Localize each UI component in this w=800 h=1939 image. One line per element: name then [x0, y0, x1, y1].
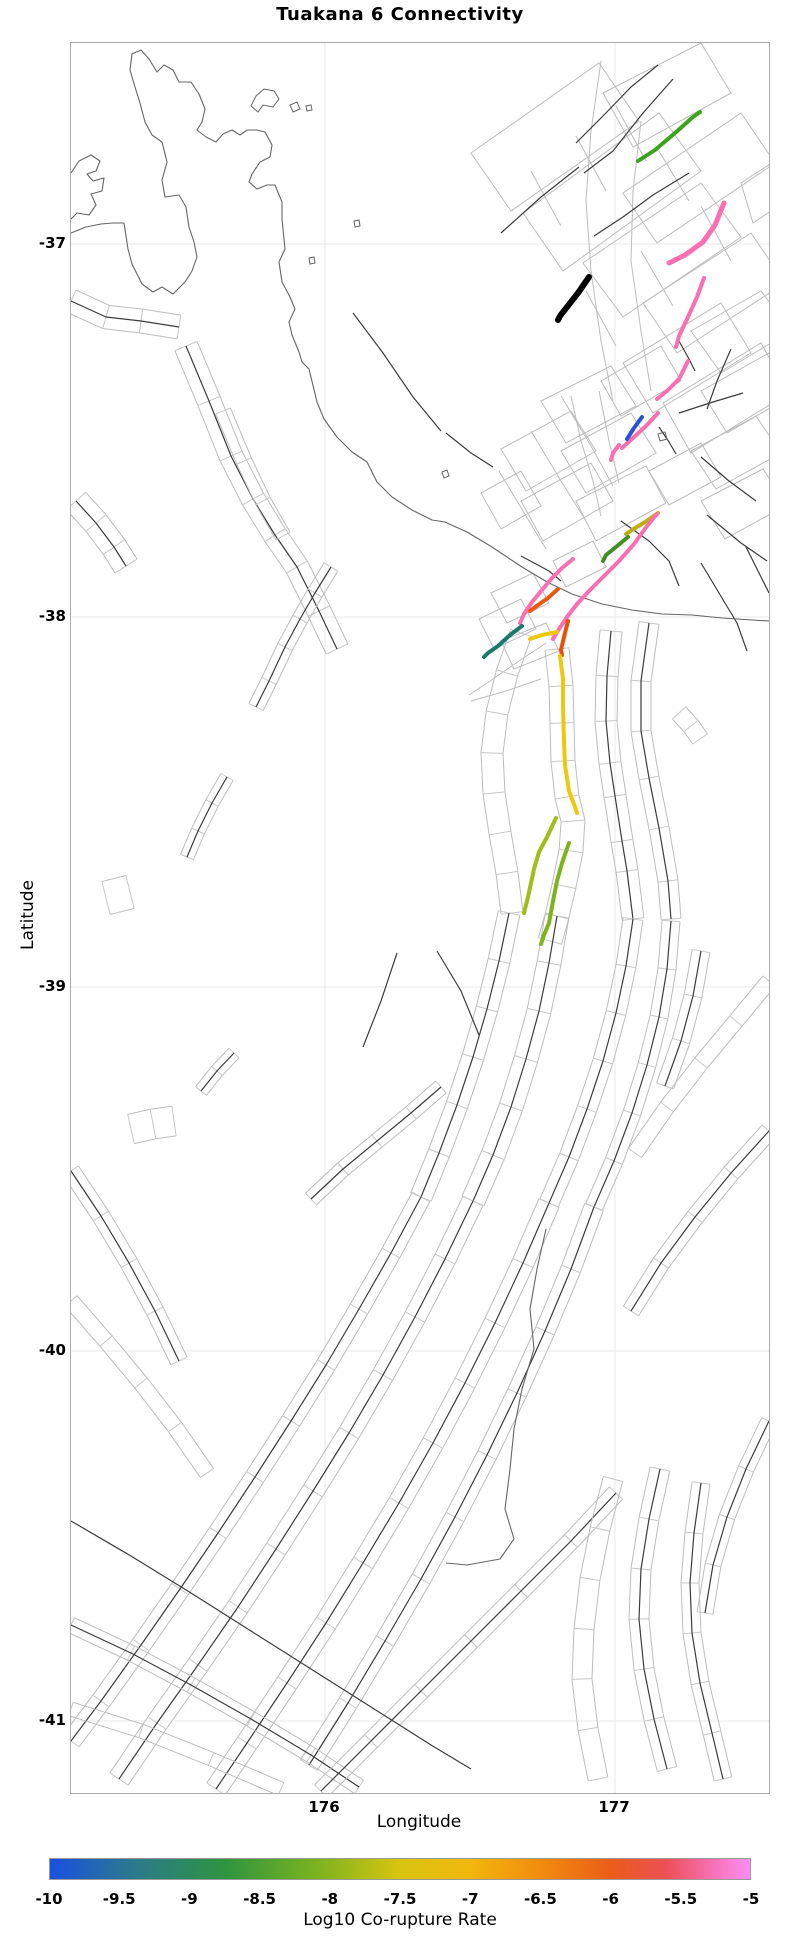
- colorbar-tick-label: -7.5: [384, 1890, 417, 1908]
- plot-area: [70, 42, 770, 1794]
- y-tick-label: -37: [22, 234, 66, 252]
- colorbar-tick-label: -8: [321, 1890, 338, 1908]
- y-tick-label: -40: [22, 1341, 66, 1359]
- colorbar-tick-label: -7: [462, 1890, 479, 1908]
- map-canvas: [71, 43, 769, 1793]
- colorbar-tick-label: -5: [743, 1890, 760, 1908]
- colorbar-tick-label: -5.5: [664, 1890, 697, 1908]
- x-axis-label: Longitude: [319, 1812, 519, 1832]
- figure-root: Tuakana 6 Connectivity -37-38-39-40-41 1…: [0, 0, 800, 1939]
- colorbar-tick-label: -8.5: [243, 1890, 276, 1908]
- y-tick-label: -38: [22, 607, 66, 625]
- colorbar-tick-label: -9: [181, 1890, 198, 1908]
- colorbar-label: Log10 Co-rupture Rate: [200, 1910, 600, 1930]
- colorbar-tick-label: -6: [602, 1890, 619, 1908]
- y-tick-label: -41: [22, 1711, 66, 1729]
- colorbar-gradient: [49, 1858, 751, 1880]
- y-tick-label: -39: [22, 977, 66, 995]
- x-tick-label: 177: [598, 1798, 629, 1816]
- y-axis-label: Latitude: [18, 855, 38, 975]
- colorbar-tick-label: -9.5: [103, 1890, 136, 1908]
- colorbar-tick-label: -6.5: [524, 1890, 557, 1908]
- chart-title: Tuakana 6 Connectivity: [0, 4, 800, 25]
- colorbar-tick-label: -10: [35, 1890, 62, 1908]
